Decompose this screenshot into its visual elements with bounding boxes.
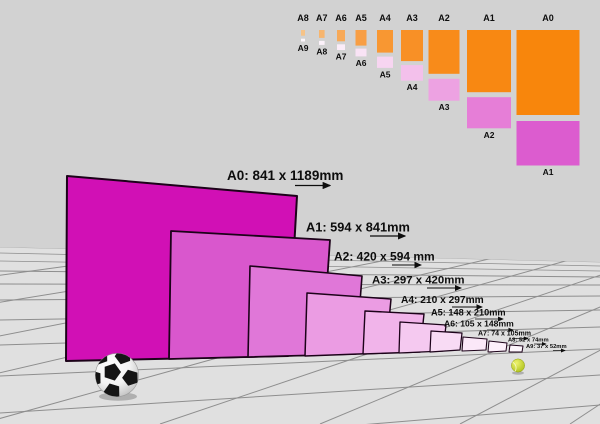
chart-portrait-label-A7: A7 <box>316 13 328 23</box>
board-A9 <box>509 345 523 352</box>
board-label-A9: A9: 37 x 52mm <box>526 344 567 350</box>
chart-landscape-label-A1: A1 <box>543 167 554 177</box>
chart-portrait-label-A8: A8 <box>297 13 309 23</box>
chart-portrait-rect-A0 <box>517 30 580 115</box>
chart-landscape-label-A6: A6 <box>356 58 367 68</box>
chart-portrait-rect-A1 <box>467 30 511 92</box>
chart-portrait-label-A6: A6 <box>335 13 347 23</box>
chart-landscape-rect-A3 <box>429 79 460 101</box>
chart-portrait-label-A2: A2 <box>438 13 450 23</box>
board-label-A0: A0: 841 x 1189mm <box>227 168 343 183</box>
chart-landscape-label-A9: A9 <box>298 43 309 53</box>
chart-portrait-label-A1: A1 <box>483 13 495 23</box>
paper-sizes-infographic: A0: 841 x 1189mmA1: 594 x 841mmA2: 420 x… <box>0 0 600 424</box>
board-label-A1: A1: 594 x 841mm <box>306 220 410 235</box>
board-A8 <box>488 341 507 352</box>
chart-landscape-label-A4: A4 <box>407 82 418 92</box>
chart-landscape-rect-A9 <box>301 39 305 42</box>
chart-landscape-label-A5: A5 <box>380 69 391 79</box>
board-label-A3: A3: 297 x 420mm <box>372 275 464 287</box>
chart-portrait-rect-A3 <box>401 30 423 61</box>
scene-canvas: A0: 841 x 1189mmA1: 594 x 841mmA2: 420 x… <box>0 0 600 424</box>
chart-landscape-rect-A8 <box>319 41 325 45</box>
chart-portrait-rect-A8 <box>301 30 305 36</box>
chart-portrait-label-A5: A5 <box>355 13 367 23</box>
chart-portrait-rect-A7 <box>319 30 325 38</box>
chart-landscape-label-A8: A8 <box>316 46 327 56</box>
tennis-ball <box>511 359 524 375</box>
chart-landscape-rect-A7 <box>337 44 345 50</box>
chart-landscape-rect-A4 <box>401 65 423 81</box>
chart-landscape-rect-A1 <box>517 121 580 166</box>
board-A7 <box>462 337 487 351</box>
chart-landscape-label-A7: A7 <box>336 52 347 62</box>
chart-portrait-rect-A5 <box>356 30 367 46</box>
chart-portrait-label-A0: A0 <box>542 13 554 23</box>
board-A6 <box>430 331 462 352</box>
board-label-A6: A6: 105 x 148mm <box>444 319 514 329</box>
board-label-A7: A7: 74 x 105mm <box>478 331 531 338</box>
chart-landscape-rect-A5 <box>377 57 393 68</box>
chart-portrait-label-A4: A4 <box>379 13 391 23</box>
board-label-A2: A2: 420 x 594 mm <box>334 250 435 264</box>
chart-portrait-rect-A6 <box>337 30 345 41</box>
chart-portrait-rect-A4 <box>377 30 393 53</box>
chart-portrait-rect-A2 <box>429 30 460 74</box>
chart-landscape-rect-A6 <box>356 49 367 57</box>
tennis-ball-body <box>511 359 524 372</box>
chart-landscape-rect-A2 <box>467 97 511 128</box>
chart-landscape-label-A2: A2 <box>484 130 495 140</box>
board-label-A8: A8: 52 x 74mm <box>508 338 549 344</box>
chart-portrait-label-A3: A3 <box>406 13 418 23</box>
board-label-A5: A5: 148 x 210mm <box>431 308 506 318</box>
chart-landscape-label-A3: A3 <box>439 102 450 112</box>
board-label-A4: A4: 210 x 297mm <box>401 295 484 306</box>
